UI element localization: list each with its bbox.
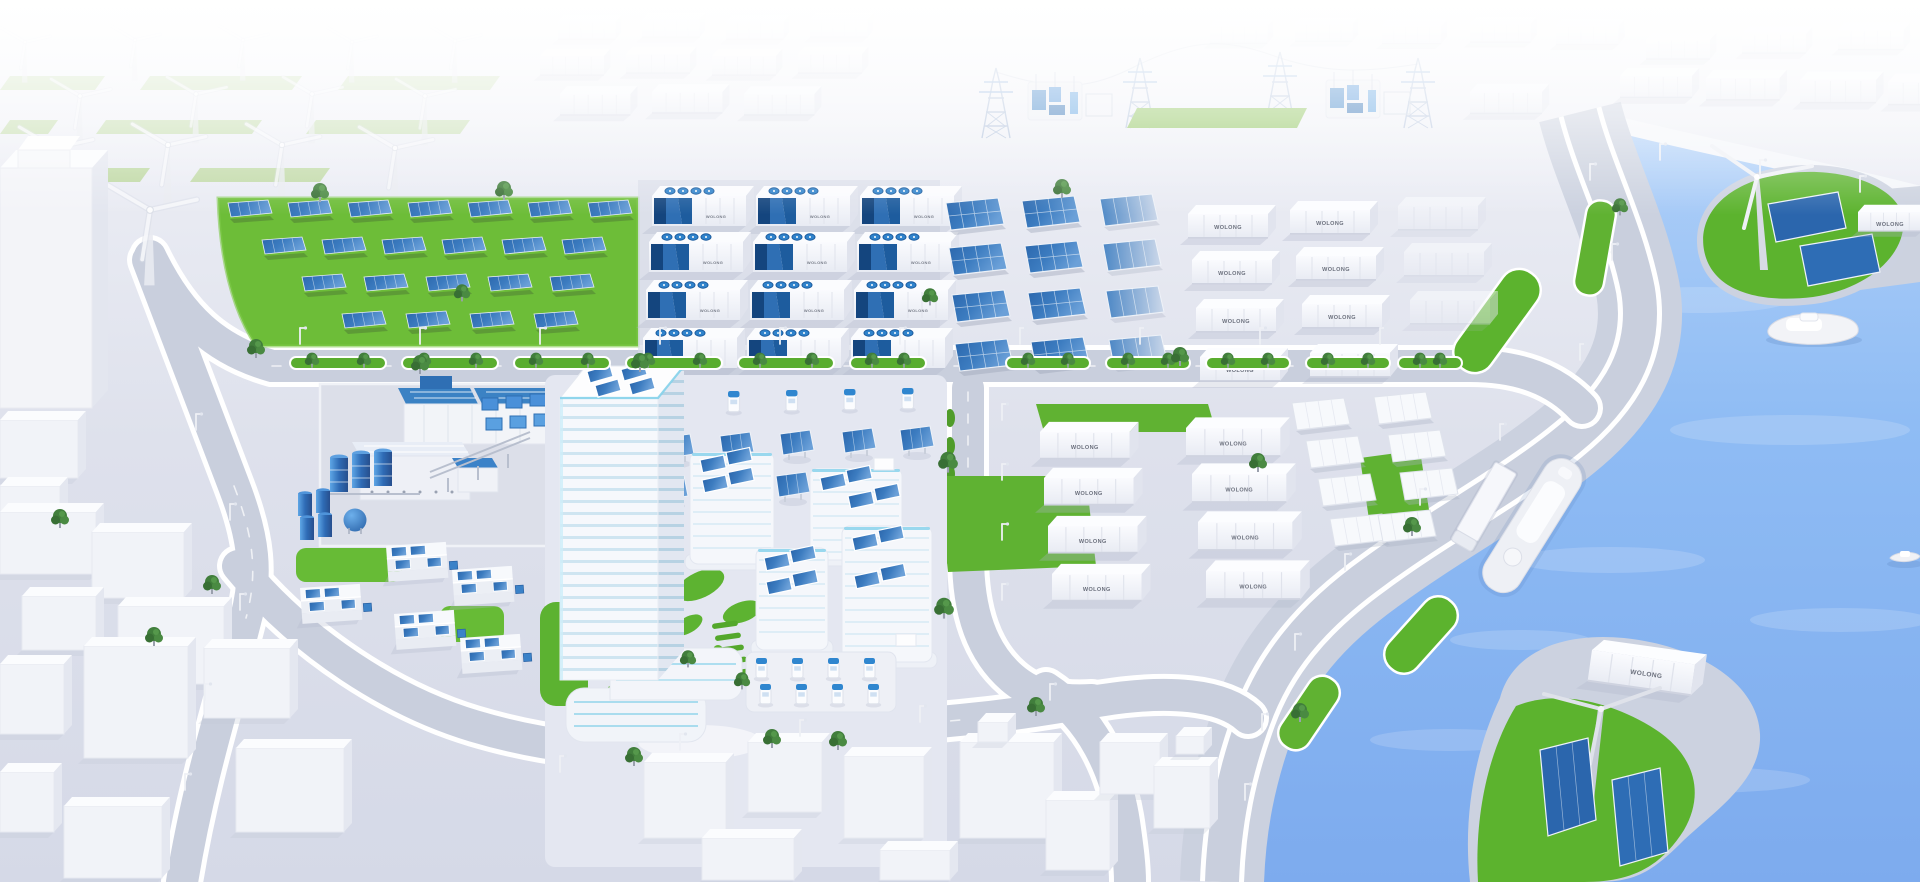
solar-panel-array <box>952 290 1012 327</box>
container-brand-label: WOLONG <box>908 308 928 313</box>
solar-panel-array <box>488 274 534 297</box>
blank-solar-array <box>1388 430 1448 467</box>
scene-illustration: WOLONG WOLONG <box>0 0 1920 882</box>
container-brand-label: WOLONG <box>804 308 824 313</box>
ev-charger <box>842 389 858 414</box>
solar-panel-array <box>382 237 428 260</box>
container-brand-label: WOLONG <box>700 308 720 313</box>
solar-panel-array <box>442 237 488 260</box>
container-brand-label: WOLONG <box>807 260 827 265</box>
solar-panel-array <box>550 274 596 297</box>
ev-charger <box>826 658 841 682</box>
solar-panel-array <box>955 339 1015 376</box>
road-median <box>1306 357 1390 369</box>
battery-storage-unit <box>639 232 751 280</box>
city-building <box>230 739 352 838</box>
solar-carport <box>780 430 814 464</box>
ev-charger <box>862 658 877 682</box>
ev-charger <box>830 684 845 708</box>
road-median <box>850 357 926 369</box>
city-building <box>198 639 298 724</box>
city-building <box>78 637 196 764</box>
ev-charger <box>784 390 800 415</box>
container-brand-label: WOLONG <box>1071 445 1099 451</box>
solar-panel-array <box>949 243 1009 280</box>
container-brand-label: WOLONG <box>1225 488 1253 494</box>
blank-solar-array <box>1292 398 1352 435</box>
solar-panel-array <box>470 311 516 334</box>
ev-charger <box>726 391 742 416</box>
lawn <box>296 548 402 582</box>
container-brand-label: WOLONG <box>1239 585 1267 591</box>
container-brand-label: WOLONG <box>1322 267 1350 273</box>
solar-panel-array <box>364 274 410 297</box>
road-median <box>738 357 834 369</box>
solar-carport <box>900 426 934 460</box>
container-brand-label: WOLONG <box>1079 539 1107 545</box>
solar-carport <box>776 472 810 506</box>
fog-overlay <box>0 0 1920 215</box>
container-brand-label: WOLONG <box>1876 222 1904 228</box>
ev-charger <box>758 684 773 708</box>
battery-storage-unit <box>847 232 959 280</box>
blank-solar-array <box>1400 468 1460 505</box>
road-median <box>1206 357 1290 369</box>
ev-charger <box>866 684 881 708</box>
distant-container <box>1402 291 1498 331</box>
ev-charger <box>794 684 809 708</box>
solar-panel-array-faded <box>1103 239 1163 276</box>
solar-panel-array <box>502 237 548 260</box>
solar-panel-array <box>406 311 452 334</box>
city-building <box>742 733 830 818</box>
battery-storage-unit <box>844 280 956 328</box>
container-brand-label: WOLONG <box>703 260 723 265</box>
distant-container <box>1396 243 1492 283</box>
solar-panel-array <box>322 237 368 260</box>
ev-charger <box>754 658 769 682</box>
battery-storage-unit <box>636 280 748 328</box>
solar-panel-array <box>534 311 580 334</box>
battery-storage-unit <box>743 232 855 280</box>
solar-panel-array <box>1025 241 1085 278</box>
battery-storage-unit <box>740 280 852 328</box>
container-brand-label: WOLONG <box>1219 442 1247 448</box>
blank-solar-array <box>1306 436 1366 473</box>
city-building <box>0 763 62 838</box>
container-brand-label: WOLONG <box>1222 319 1250 325</box>
city-building <box>1040 791 1118 876</box>
container-brand-label: WOLONG <box>1316 221 1344 227</box>
road-median <box>514 357 610 369</box>
plant-shed <box>452 458 498 492</box>
ev-charger <box>790 658 805 682</box>
city-building <box>0 503 104 580</box>
city-building <box>0 411 86 484</box>
city-building <box>696 829 802 882</box>
container-brand-label: WOLONG <box>1328 315 1356 321</box>
solar-panel-array <box>1028 288 1088 325</box>
blank-solar-array <box>1374 392 1434 429</box>
solar-farm <box>218 198 638 346</box>
storage-tanks <box>330 449 392 493</box>
city-building <box>874 841 958 882</box>
ev-charging-station <box>746 652 896 712</box>
road-median <box>1006 357 1090 369</box>
blank-solar-array <box>1318 474 1378 511</box>
solar-panel-array <box>262 237 308 260</box>
solar-panel-array <box>562 237 608 260</box>
container-brand-label: WOLONG <box>1214 225 1242 231</box>
city-building <box>58 797 170 882</box>
container-brand-label: WOLONG <box>1231 536 1259 542</box>
container-brand-label: WOLONG <box>1218 271 1246 277</box>
solar-panel-array-faded <box>1106 286 1166 323</box>
rooftop-structure <box>874 458 894 470</box>
road-median <box>290 357 386 369</box>
solar-carport <box>842 428 876 462</box>
energy-park-render: WOLONG WOLONG <box>0 0 1920 882</box>
ev-charger <box>900 388 916 413</box>
solar-panel-array <box>302 274 348 297</box>
container-brand-label: WOLONG <box>911 260 931 265</box>
city-building <box>0 655 72 740</box>
rooftop-structure <box>896 634 916 646</box>
city-building <box>1148 757 1218 834</box>
solar-panel-array <box>342 311 388 334</box>
industrial-plant <box>298 376 564 546</box>
container-brand-label: WOLONG <box>1075 491 1103 497</box>
city-building <box>838 747 932 844</box>
road-median <box>1398 357 1462 369</box>
container-brand-label: WOLONG <box>1083 587 1111 593</box>
